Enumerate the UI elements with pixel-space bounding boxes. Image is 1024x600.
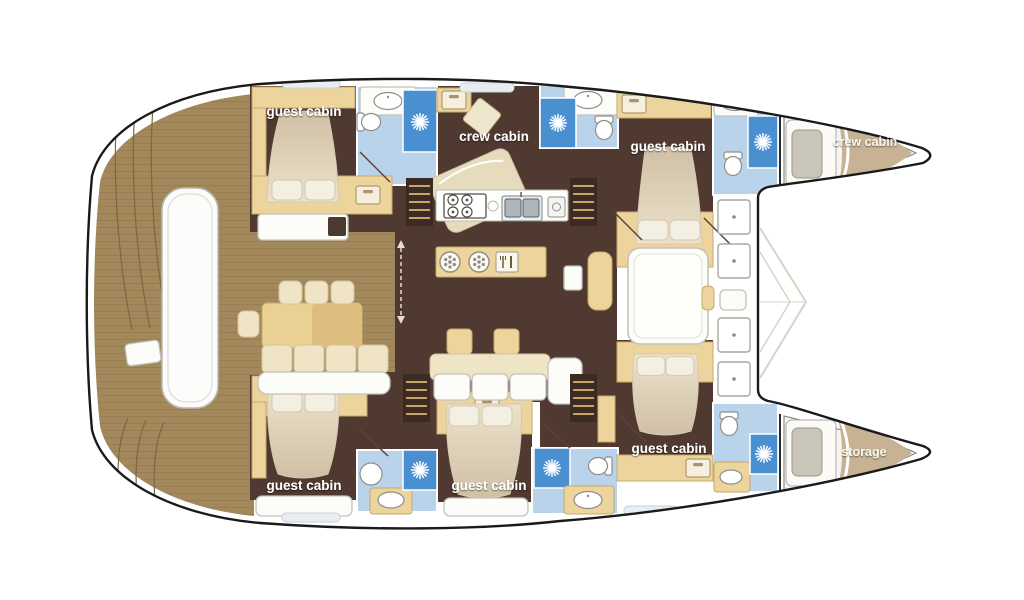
floor-plan-drawing: guest cabin crew cabin guest cabin crew … — [0, 0, 1024, 600]
bathroom-crew — [540, 85, 618, 148]
cockpit-bench — [162, 188, 218, 408]
pillow — [272, 392, 302, 412]
washbasin-icon — [574, 492, 602, 509]
pillow — [638, 220, 668, 240]
pillow — [637, 357, 665, 376]
room-label-guest-cabin-stbd-fwd: guest cabin — [631, 441, 706, 456]
catamaran-floor-plan: guest cabin crew cabin guest cabin crew … — [0, 0, 1024, 600]
stairs — [570, 178, 597, 226]
dining-chair — [305, 281, 328, 304]
pillow — [449, 406, 479, 426]
toilet-icon — [357, 113, 381, 131]
toilet-icon — [589, 457, 613, 475]
shower-rose-icon — [549, 114, 567, 132]
hob-plate-icon — [469, 252, 489, 272]
pillow — [272, 180, 302, 200]
room-label-guest-cabin-port-fwd: guest cabin — [630, 139, 705, 154]
guest-cabin-stbd-mid — [437, 392, 532, 516]
dining-chair — [331, 281, 354, 304]
shower-rose-icon — [755, 445, 773, 463]
drawer-icon — [686, 459, 710, 477]
room-label-guest-cabin-stbd-mid: guest cabin — [451, 478, 526, 493]
nav-bench — [588, 252, 612, 310]
drawer-icon — [356, 186, 380, 204]
deck-hatch — [718, 244, 750, 278]
toilet-icon — [724, 152, 742, 176]
bathroom-stbd-aft — [357, 450, 437, 514]
berth-pillow — [792, 130, 822, 178]
cutlery-icon — [496, 252, 518, 272]
room-label-crew-cabin-mid: crew cabin — [459, 129, 529, 144]
deck-hatch — [718, 200, 750, 234]
stove-icon — [444, 194, 486, 218]
desk-unit — [328, 217, 346, 236]
stairs — [406, 178, 433, 226]
pillow — [482, 406, 512, 426]
hob-plate-icon — [440, 252, 460, 272]
wardrobe — [598, 396, 615, 442]
washbasin-icon — [374, 93, 402, 110]
dining-table-leaf — [312, 303, 362, 348]
saloon-sofa-seat — [258, 372, 390, 394]
pillow — [305, 180, 335, 200]
sofa-cushion — [262, 345, 292, 373]
stairs — [403, 374, 430, 422]
sofa-cushion — [510, 374, 546, 400]
room-label-storage-bow: storage — [841, 445, 886, 459]
pad-handle — [702, 286, 714, 310]
washbasin-icon — [720, 470, 742, 484]
sofa-cushion — [294, 345, 324, 373]
pillow — [305, 392, 335, 412]
sofa-cushion — [434, 374, 470, 400]
bathroom-stbd-fwd — [713, 403, 778, 492]
room-label-guest-cabin-stbd-aft: guest cabin — [266, 478, 341, 493]
washbasin-icon — [360, 463, 382, 485]
toilet-icon — [720, 412, 738, 436]
drawer-icon — [622, 95, 646, 113]
aft-window-seat — [444, 498, 528, 516]
drawer-icon — [442, 91, 466, 109]
lounge-pad — [628, 248, 708, 344]
stairs — [570, 374, 597, 422]
sink-icon — [502, 192, 542, 221]
toilet-icon — [595, 116, 613, 140]
sofa-cushion — [358, 345, 388, 373]
room-label-guest-cabin-port-aft: guest cabin — [266, 104, 341, 119]
dining-chair — [279, 281, 302, 304]
deck-hatch — [718, 318, 750, 352]
pillow — [666, 357, 694, 376]
bathroom-stbd-mid — [532, 448, 618, 514]
washbasin-icon — [574, 92, 602, 109]
shower-rose-icon — [411, 113, 429, 131]
room-label-crew-cabin-bow: crew cabin — [833, 135, 898, 149]
deck-fitting — [720, 290, 746, 310]
side-table — [564, 266, 582, 290]
ottoman — [447, 329, 472, 354]
shower-rose-icon — [543, 459, 561, 477]
deck-locker — [125, 340, 162, 367]
shower-rose-icon — [754, 133, 772, 151]
berth-pillow — [792, 428, 822, 476]
dining-chair — [238, 311, 259, 337]
dishwasher-icon — [548, 197, 565, 217]
sofa-cushion — [472, 374, 508, 400]
sofa-cushion — [326, 345, 356, 373]
deck-hatch — [718, 362, 750, 396]
shower-rose-icon — [411, 461, 429, 479]
ottoman — [494, 329, 519, 354]
pillow — [670, 220, 700, 240]
bathroom-port-aft — [357, 86, 437, 185]
